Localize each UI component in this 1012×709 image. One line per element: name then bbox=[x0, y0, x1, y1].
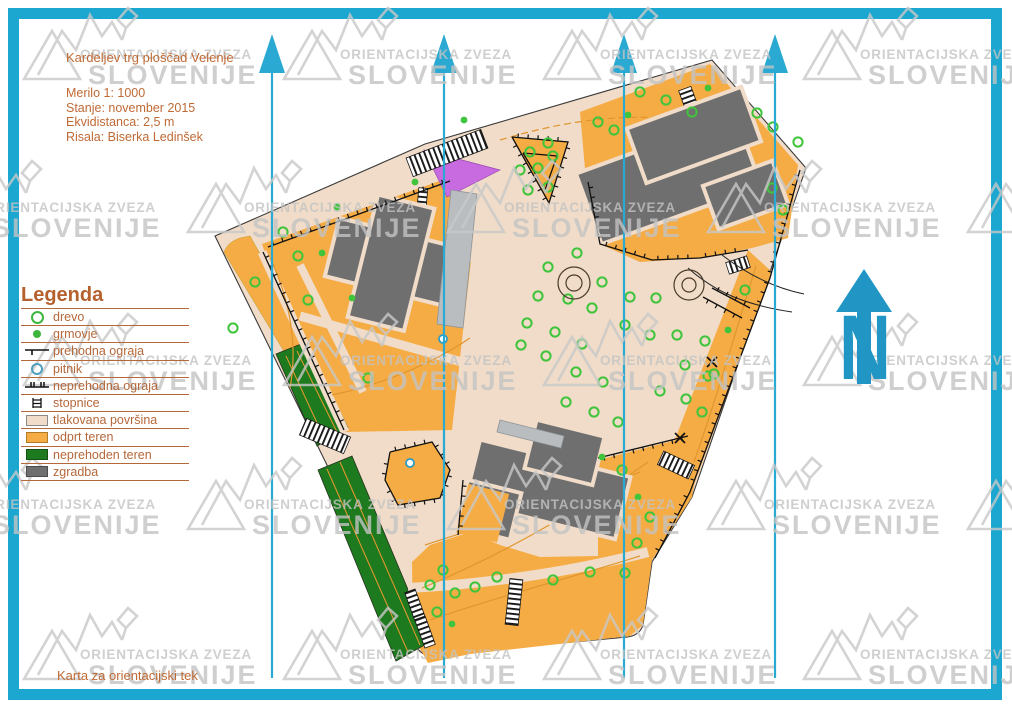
north-arrow: N bbox=[836, 269, 892, 399]
map-type-caption: Karta za orientacijski tek bbox=[57, 668, 198, 683]
fence-tick bbox=[424, 501, 425, 505]
fence-tick bbox=[705, 253, 706, 257]
passable-fence-icon bbox=[21, 346, 53, 356]
orienteering-federation-watermark bbox=[0, 161, 162, 243]
map-sheet: ORIENTACIJSKA ZVEZA SLOVENIJE bbox=[0, 0, 1012, 709]
orienteering-federation-watermark bbox=[804, 8, 1012, 90]
map-scale: Merilo 1: 1000 bbox=[66, 86, 203, 101]
orienteering-federation-watermark bbox=[708, 458, 942, 540]
legend-item-stairs: stopnice bbox=[21, 395, 189, 412]
bush-icon bbox=[599, 454, 606, 461]
fence-tick bbox=[384, 464, 388, 465]
orienteering-federation-watermark bbox=[968, 458, 1012, 540]
bush-icon bbox=[625, 112, 632, 119]
tree-icon bbox=[228, 323, 237, 332]
legend-item-passable-fence: prehodna ograja bbox=[21, 343, 189, 360]
orienteering-federation-watermark bbox=[804, 608, 1012, 690]
drinking-fountain-icon bbox=[406, 459, 414, 467]
fence-tick bbox=[715, 251, 716, 255]
paved-area-icon bbox=[21, 415, 53, 426]
legend-item-building: zgradba bbox=[21, 464, 189, 481]
bush-icon bbox=[349, 295, 356, 302]
legend-label: prehodna ograja bbox=[53, 344, 144, 358]
legend-item-bush: grmovje bbox=[21, 326, 189, 343]
fence-tick bbox=[725, 250, 726, 254]
fence-tick bbox=[591, 197, 595, 198]
legend-label: tlakovana površina bbox=[53, 413, 157, 427]
impassable-terrain-icon bbox=[21, 449, 53, 460]
map-equidistance: Ekvidistanca: 2,5 m bbox=[66, 115, 203, 130]
orienteering-federation-watermark bbox=[24, 8, 258, 90]
legend: Legenda drevo grmovje prehodna ograja pi… bbox=[21, 284, 189, 481]
impassable-fence-icon bbox=[21, 381, 53, 391]
north-line-arrowhead bbox=[259, 34, 285, 73]
legend-item-impassable-terrain: neprehoden teren bbox=[21, 447, 189, 464]
legend-label: pitnik bbox=[53, 362, 82, 376]
legend-item-tree: drevo bbox=[21, 309, 189, 326]
drinking-fountain-icon bbox=[21, 363, 53, 375]
legend-label: stopnice bbox=[53, 396, 100, 410]
fence-tick bbox=[382, 473, 386, 474]
legend-label: neprehoden teren bbox=[53, 448, 152, 462]
fence-tick bbox=[434, 499, 435, 503]
legend-label: odprt teren bbox=[53, 430, 113, 444]
legend-label: drevo bbox=[53, 310, 84, 324]
orienteering-federation-watermark bbox=[804, 314, 1012, 396]
legend-item-impassable-fence: neprehodna ograja bbox=[21, 378, 189, 395]
tree-icon bbox=[793, 137, 802, 146]
building-icon bbox=[21, 466, 53, 477]
open-terrain-icon bbox=[21, 432, 53, 443]
map-author: Risala: Biserka Ledinšek bbox=[66, 130, 203, 145]
fence-tick bbox=[589, 187, 593, 188]
legend-label: zgradba bbox=[53, 465, 98, 479]
map-title: Kardeljev trg ploščad Velenje bbox=[66, 50, 234, 65]
fence-tick bbox=[735, 248, 736, 252]
orienteering-federation-watermark bbox=[968, 161, 1012, 243]
legend-item-paved-area: tlakovana površina bbox=[21, 412, 189, 429]
bush-icon bbox=[412, 179, 419, 186]
tree-icon bbox=[21, 311, 53, 324]
north-arrow-letter: N bbox=[839, 297, 891, 399]
map-status-date: Stanje: november 2015 bbox=[66, 101, 203, 116]
bush-icon bbox=[449, 621, 456, 628]
legend-item-drinking-fountain: pitnik bbox=[21, 361, 189, 378]
legend-label: neprehodna ograja bbox=[53, 379, 158, 393]
legend-item-open-terrain: odprt teren bbox=[21, 429, 189, 446]
legend-label: grmovje bbox=[53, 327, 97, 341]
bush-icon bbox=[725, 327, 732, 334]
orienteering-federation-watermark bbox=[544, 8, 778, 90]
stairs-icon bbox=[21, 397, 53, 409]
bush-icon bbox=[461, 117, 468, 124]
legend-title: Legenda bbox=[21, 284, 189, 309]
bush-icon bbox=[21, 330, 53, 338]
orienteering-federation-watermark bbox=[284, 8, 518, 90]
bush-icon bbox=[319, 250, 326, 257]
map-meta: Merilo 1: 1000 Stanje: november 2015 Ekv… bbox=[66, 86, 203, 144]
